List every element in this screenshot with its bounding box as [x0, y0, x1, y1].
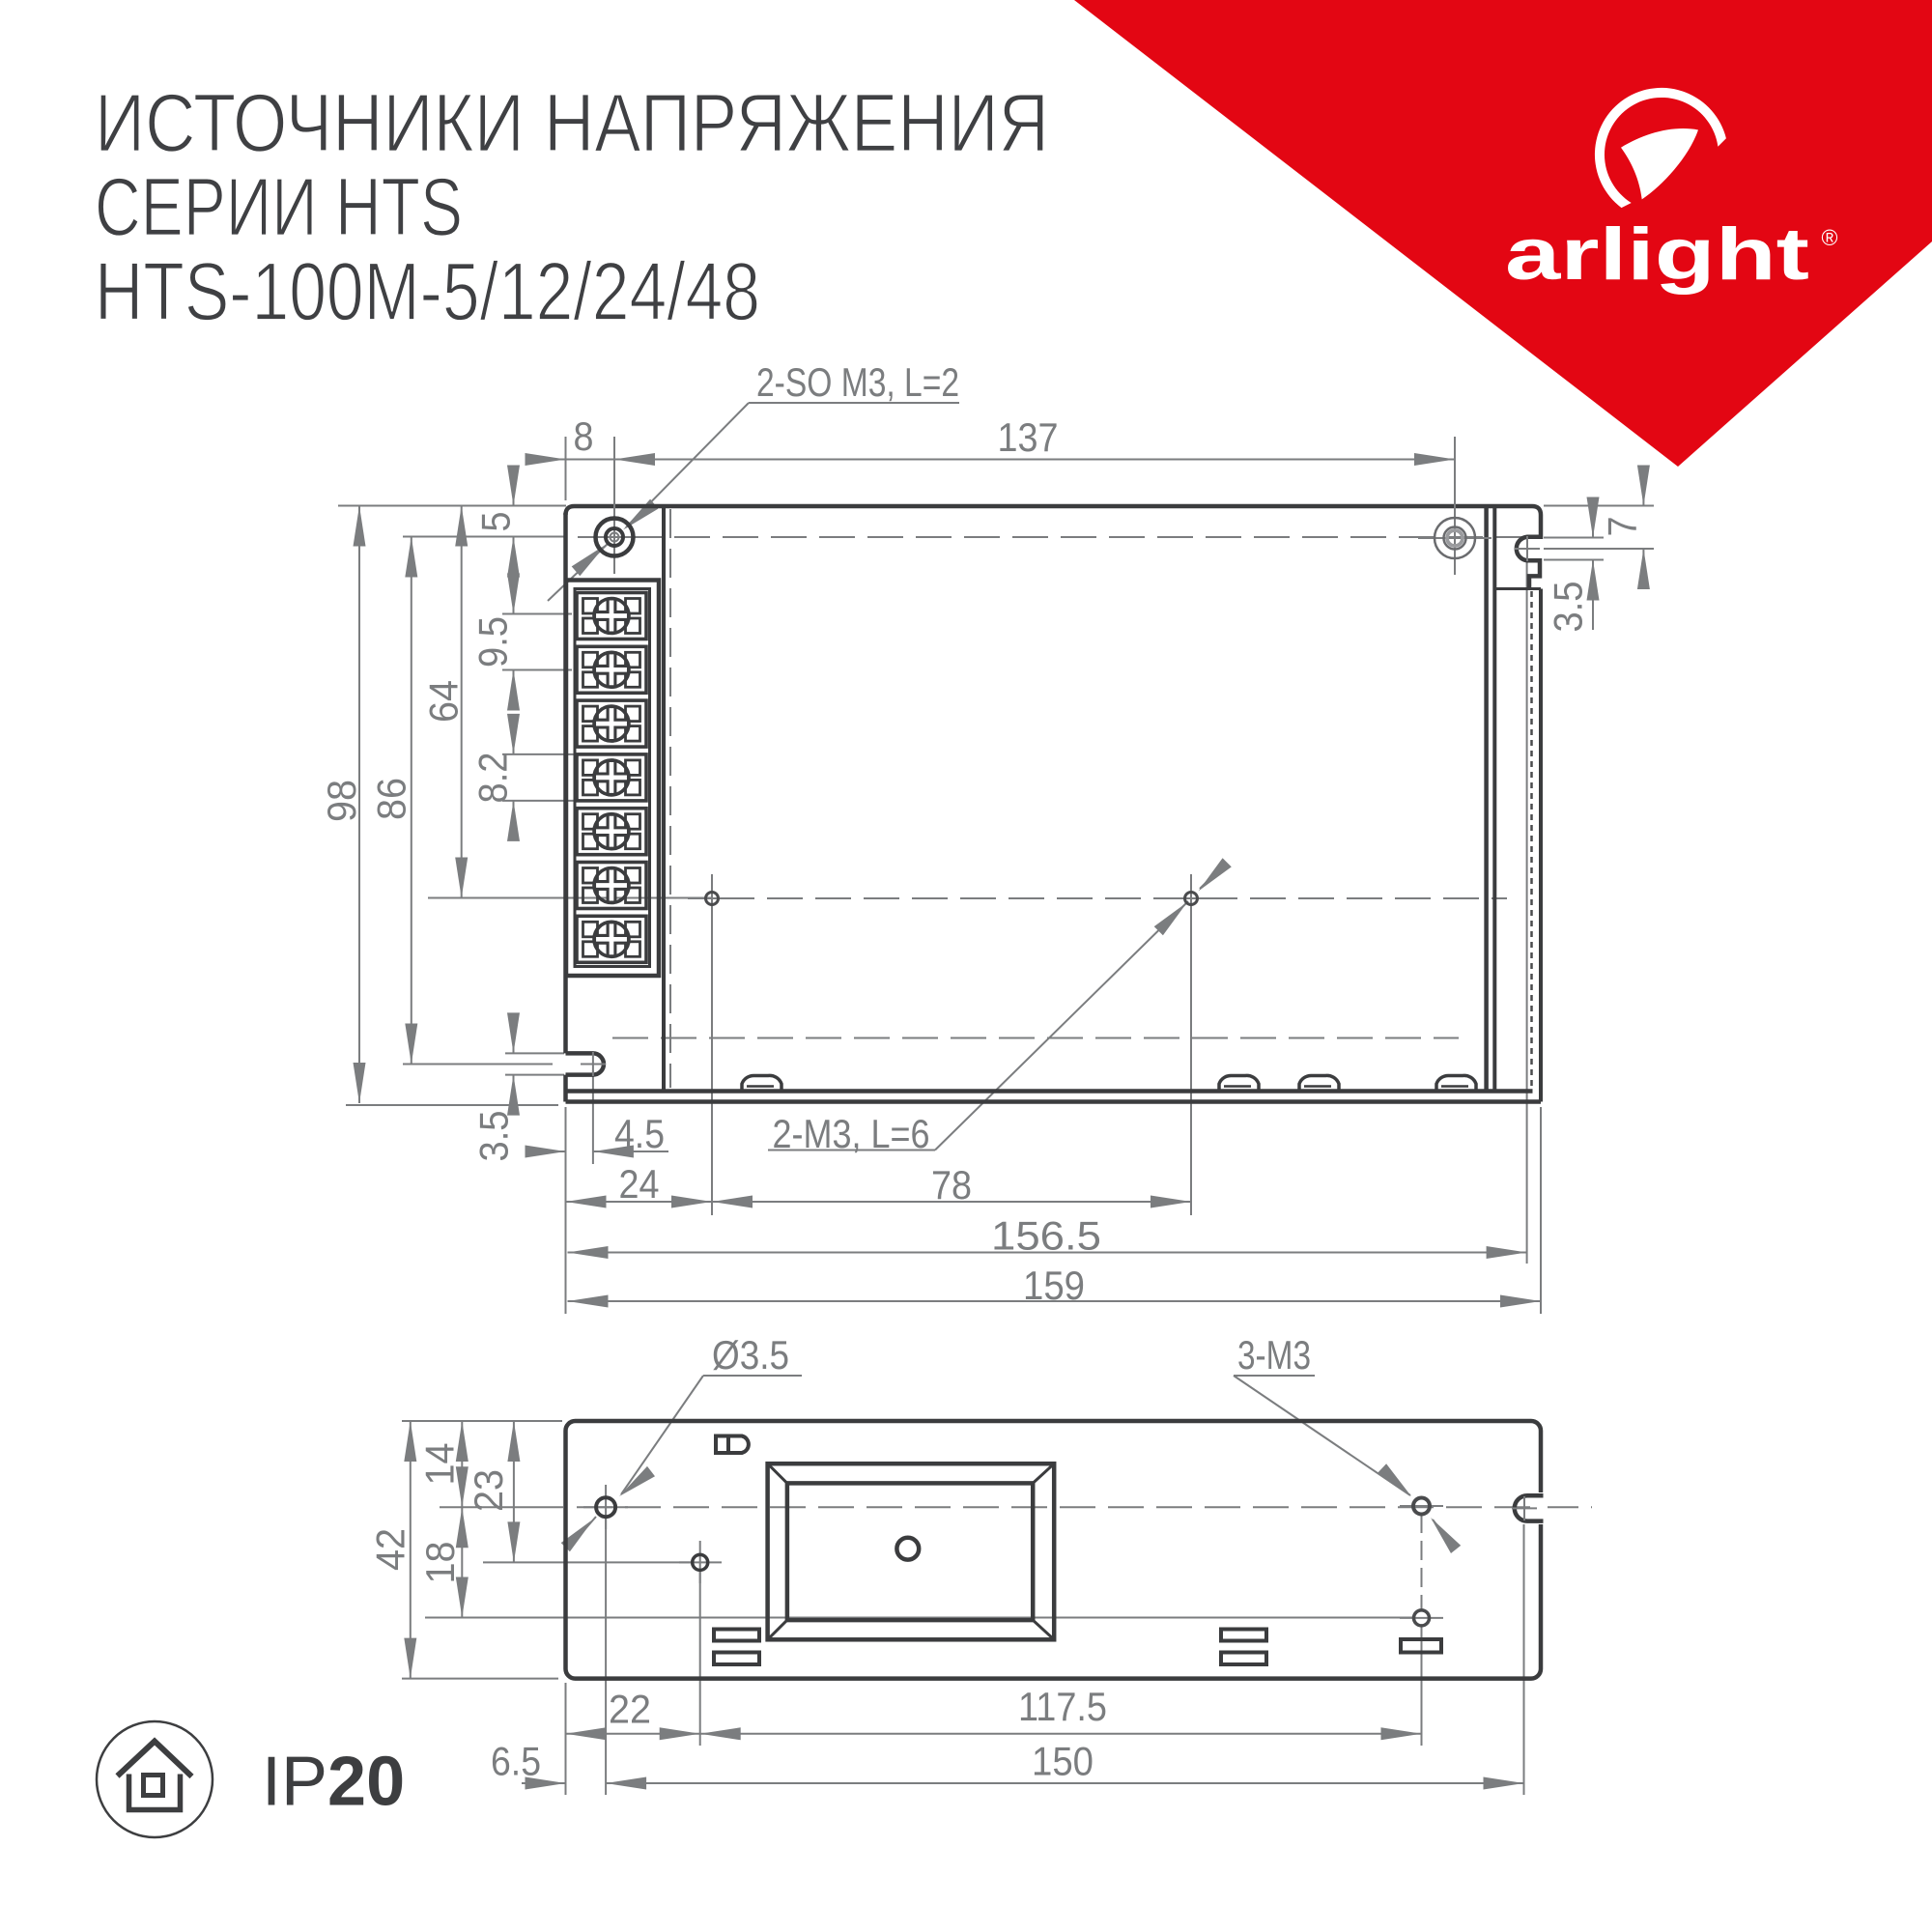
svg-text:64: 64 [421, 680, 467, 723]
svg-text:HTS-100M-5/12/24/48: HTS-100M-5/12/24/48 [95, 246, 760, 338]
svg-text:4.5: 4.5 [614, 1111, 665, 1156]
svg-text:78: 78 [931, 1162, 972, 1207]
svg-text:3.5: 3.5 [1546, 582, 1591, 633]
svg-text:IP20: IP20 [262, 1744, 405, 1821]
svg-text:СЕРИИ HTS: СЕРИИ HTS [95, 162, 463, 254]
svg-text:6.5: 6.5 [491, 1739, 541, 1784]
svg-text:2-SO M3, L=2: 2-SO M3, L=2 [756, 359, 959, 405]
svg-text:2-M3, L=6: 2-M3, L=6 [773, 1111, 930, 1156]
svg-text:3.5: 3.5 [471, 1111, 517, 1162]
svg-text:18: 18 [417, 1542, 463, 1584]
svg-text:24: 24 [619, 1161, 660, 1207]
svg-text:3-M3: 3-M3 [1237, 1332, 1311, 1378]
svg-text:5: 5 [473, 512, 519, 532]
svg-text:7: 7 [1600, 517, 1645, 537]
svg-text:23: 23 [466, 1469, 511, 1512]
svg-text:156.5: 156.5 [991, 1213, 1101, 1259]
svg-text:42: 42 [368, 1528, 413, 1571]
svg-text:Ø3.5: Ø3.5 [712, 1332, 789, 1378]
svg-text:®: ® [1822, 225, 1838, 250]
svg-text:8: 8 [574, 413, 594, 459]
svg-text:14: 14 [417, 1443, 463, 1486]
svg-text:arlight: arlight [1505, 213, 1809, 296]
svg-text:9.5: 9.5 [470, 616, 516, 668]
svg-text:159: 159 [1023, 1263, 1085, 1308]
svg-text:86: 86 [369, 778, 414, 820]
svg-text:117.5: 117.5 [1018, 1684, 1107, 1729]
svg-text:ИСТОЧНИКИ НАПРЯЖЕНИЯ: ИСТОЧНИКИ НАПРЯЖЕНИЯ [95, 78, 1049, 170]
svg-text:22: 22 [609, 1687, 651, 1732]
svg-text:8.2: 8.2 [470, 753, 516, 804]
svg-text:137: 137 [998, 414, 1059, 460]
svg-text:150: 150 [1032, 1739, 1094, 1784]
svg-text:98: 98 [319, 780, 364, 822]
